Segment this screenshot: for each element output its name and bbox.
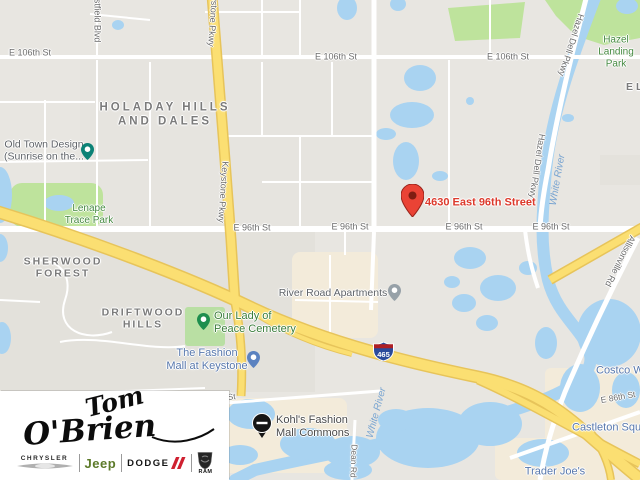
poi-label-old-town-design[interactable]: Old Town Design (Sunrise on the... — [4, 139, 84, 164]
poi-label-cemetery[interactable]: Our Lady of Peace Cemetery — [214, 310, 296, 336]
jeep-wordmark: Jeep — [85, 456, 117, 471]
map-screenshot: E 106th St E 106th St E 106th St E 96th … — [0, 0, 640, 480]
dealer-logo: Tom O'Brien CHRYSLER Jeep DODGE — [0, 391, 229, 480]
poi-label-trader-joes[interactable]: Trader Joe's — [525, 466, 585, 479]
ram-shield-icon — [197, 452, 213, 469]
destination-marker-pin-icon[interactable] — [401, 184, 424, 217]
brand-divider — [121, 454, 122, 472]
ram-wordmark: RAM — [198, 470, 212, 476]
poi-label-kohls[interactable]: Kohl's Fashion Mall Commons — [276, 414, 349, 440]
brand-divider — [191, 454, 192, 472]
old-town-design-pin-icon[interactable] — [81, 143, 94, 160]
dodge-wordmark: DODGE — [127, 458, 169, 469]
poi-label-river-road-apartments[interactable]: River Road Apartments — [279, 287, 388, 299]
brand-divider — [79, 454, 80, 472]
chrysler-logo: CHRYSLER — [16, 456, 74, 472]
dealer-name-last: O'Brien — [22, 408, 157, 449]
fashion-mall-pin-icon[interactable] — [247, 351, 260, 368]
dodge-logo: DODGE — [127, 457, 186, 469]
chrysler-wing-icon — [16, 462, 74, 471]
svg-text:465: 465 — [377, 350, 390, 359]
dodge-slashes-icon — [171, 457, 186, 469]
dealer-script-logo: Tom O'Brien — [0, 391, 229, 449]
kohls-logo-pin-icon[interactable] — [252, 413, 272, 438]
river-road-apartments-pin-icon[interactable] — [388, 284, 401, 301]
cemetery-pin-icon[interactable] — [197, 313, 210, 330]
ram-logo: RAM — [197, 452, 213, 476]
poi-label-castleton-square[interactable]: Castleton Square — [572, 422, 640, 435]
park-label-hazel-landing[interactable]: Hazel Landing Park — [598, 34, 634, 69]
interstate-465-shield-icon: 465 — [373, 342, 394, 361]
poi-label-costco[interactable]: Costco Wholesale — [596, 365, 640, 378]
poi-label-fashion-mall[interactable]: The Fashion Mall at Keystone — [166, 347, 247, 373]
brand-logos-row: CHRYSLER Jeep DODGE — [2, 452, 227, 476]
script-flourish — [152, 429, 214, 442]
park-label-lenape-trace[interactable]: Lenape Trace Park — [65, 203, 114, 227]
